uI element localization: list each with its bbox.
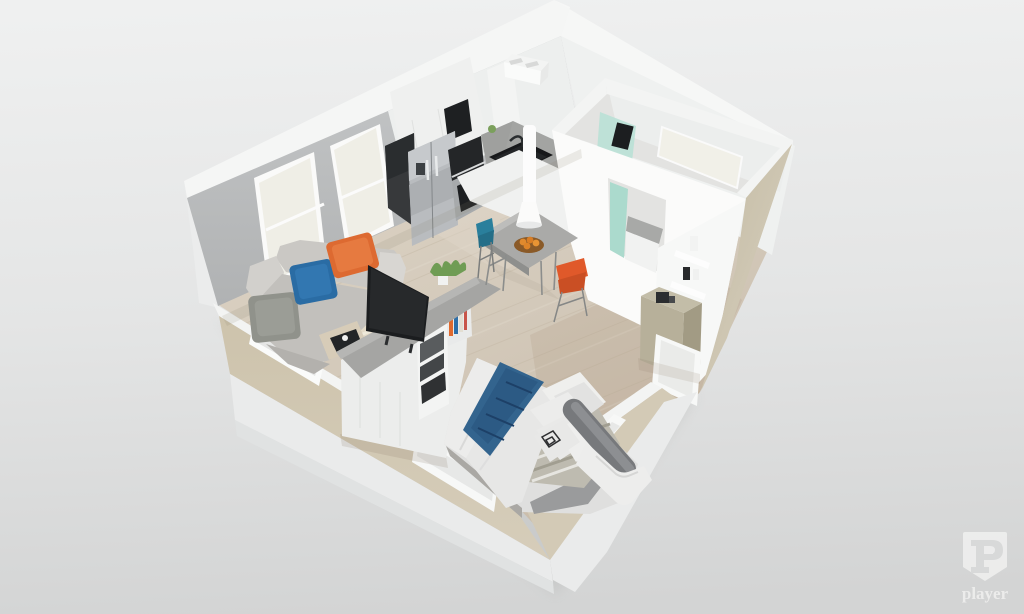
svg-text:player: player [962,584,1009,603]
